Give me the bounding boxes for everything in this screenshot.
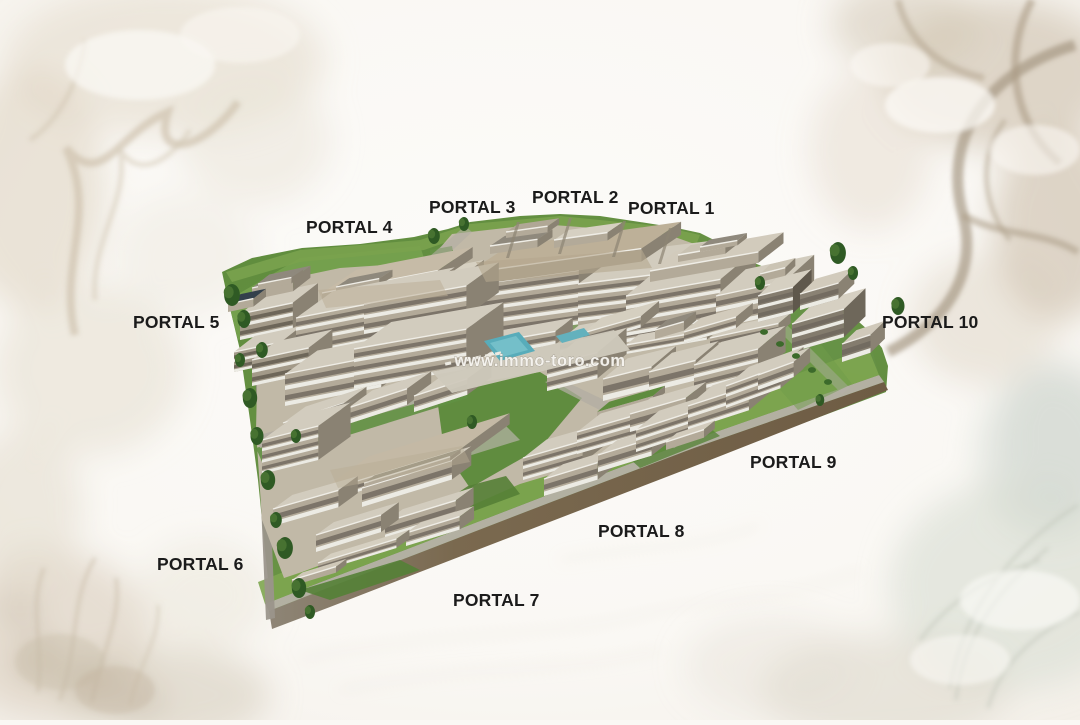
svg-text:PORTAL 3: PORTAL 3 bbox=[429, 197, 516, 217]
svg-text:PORTAL 2: PORTAL 2 bbox=[532, 187, 619, 207]
svg-text:PORTAL 5: PORTAL 5 bbox=[133, 312, 220, 332]
svg-text:PORTAL 1: PORTAL 1 bbox=[628, 198, 715, 218]
svg-text:PORTAL 10: PORTAL 10 bbox=[882, 312, 979, 332]
svg-text:PORTAL 9: PORTAL 9 bbox=[750, 452, 837, 472]
svg-text:PORTAL 7: PORTAL 7 bbox=[453, 590, 540, 610]
svg-text:PORTAL 6: PORTAL 6 bbox=[157, 554, 244, 574]
svg-text:www.immo-toro.com: www.immo-toro.com bbox=[453, 352, 625, 370]
svg-text:PORTAL 8: PORTAL 8 bbox=[598, 521, 685, 541]
svg-text:PORTAL 4: PORTAL 4 bbox=[306, 217, 393, 237]
